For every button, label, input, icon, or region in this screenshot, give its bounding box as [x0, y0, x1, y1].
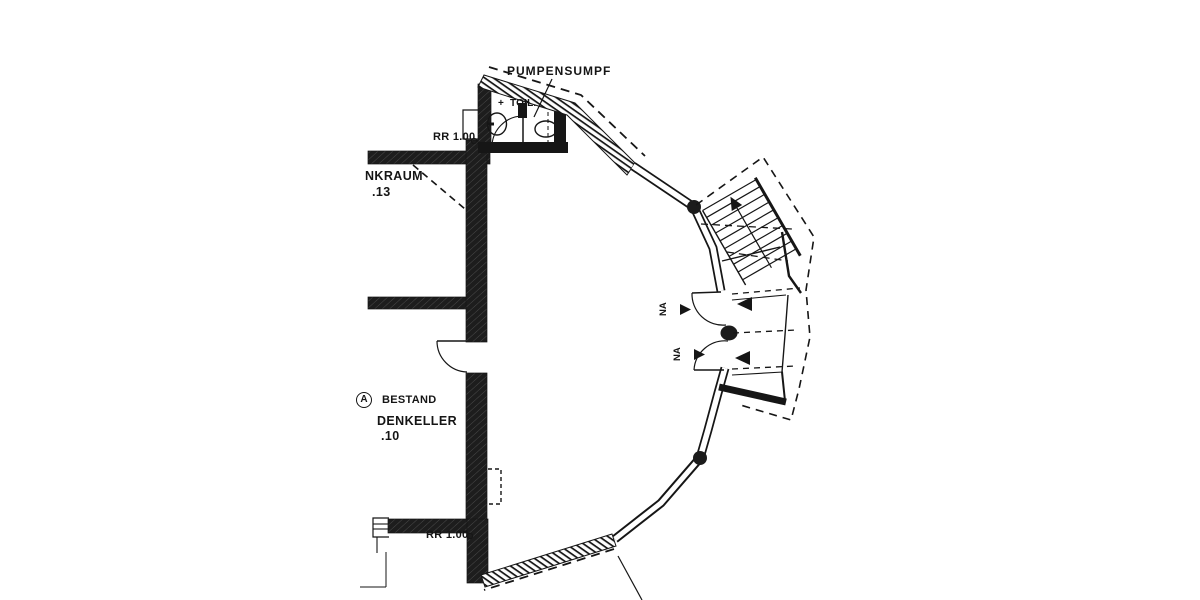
room-main-number-label: .10: [381, 429, 400, 443]
na-arrow-bottom: [694, 349, 705, 360]
legend-bestand-label: BESTAND: [382, 394, 436, 406]
interior-door: [437, 341, 467, 372]
exterior-landing: [696, 157, 814, 420]
na-label-top: NA: [658, 302, 669, 316]
toilet-left-wall: [478, 84, 491, 144]
landing-tie-solid-3: [732, 372, 783, 375]
na-markers: NA NA: [658, 302, 683, 361]
wall-vertical-lower: [466, 373, 487, 520]
rr-top-label: RR 1.00: [433, 131, 475, 143]
landing-edge-below-stairs: [722, 247, 780, 261]
wall-vertical-upper: [466, 140, 487, 342]
entrance-door-1-arc: [692, 293, 726, 325]
wc-fixture: [535, 121, 557, 137]
entrance-door-1-leaf: [692, 292, 721, 293]
legend-marker-circle: A: [356, 392, 372, 408]
room-top-name-label: NKRAUM: [365, 169, 423, 183]
landing-tie-solid-1: [732, 295, 786, 300]
wall-hidden-bracket: [488, 469, 501, 504]
bottom-leader: [618, 556, 642, 600]
floor-plan-drawing: NA NA: [0, 0, 1200, 600]
rr-bottom-label: RR 1.00: [426, 529, 468, 541]
na-label-bottom: NA: [672, 347, 683, 361]
left-building-walls: [368, 140, 490, 583]
landing-tie-dashed-3: [732, 366, 796, 369]
landing-dashed-tie-stair: [727, 252, 788, 261]
na-arrow-top: [680, 304, 691, 315]
arrow-left-lower: [735, 351, 750, 365]
wall-column-lower: [693, 451, 707, 465]
landing-tie-dashed-1: [732, 288, 800, 294]
toilet-plus-symbol: +: [498, 98, 504, 109]
room-main-name-label: DENKELLER: [377, 414, 457, 428]
landing-bottom-wall: [719, 387, 786, 402]
landing-dashed-outline: [696, 157, 814, 420]
toilet-label: TOIL.: [510, 98, 536, 109]
landing-tie-dashed-2: [733, 330, 797, 333]
edge-stair-bottom-left: [360, 518, 389, 587]
room-top-number-label: .13: [372, 185, 391, 199]
hatched-band-bottom: [481, 534, 616, 587]
direction-arrows: [680, 297, 752, 365]
door-swing-arc: [437, 341, 467, 372]
landing-right-closure: [782, 372, 785, 401]
pumpensumpf-label: PUMPENSUMPF: [507, 64, 611, 78]
floor-plan-canvas: NA NA PUMPENSUMPF + TOIL. RR 1.00 NKRAUM…: [0, 0, 1200, 600]
landing-outer-edge: [782, 295, 788, 372]
wall-middle-horizontal: [368, 297, 468, 309]
